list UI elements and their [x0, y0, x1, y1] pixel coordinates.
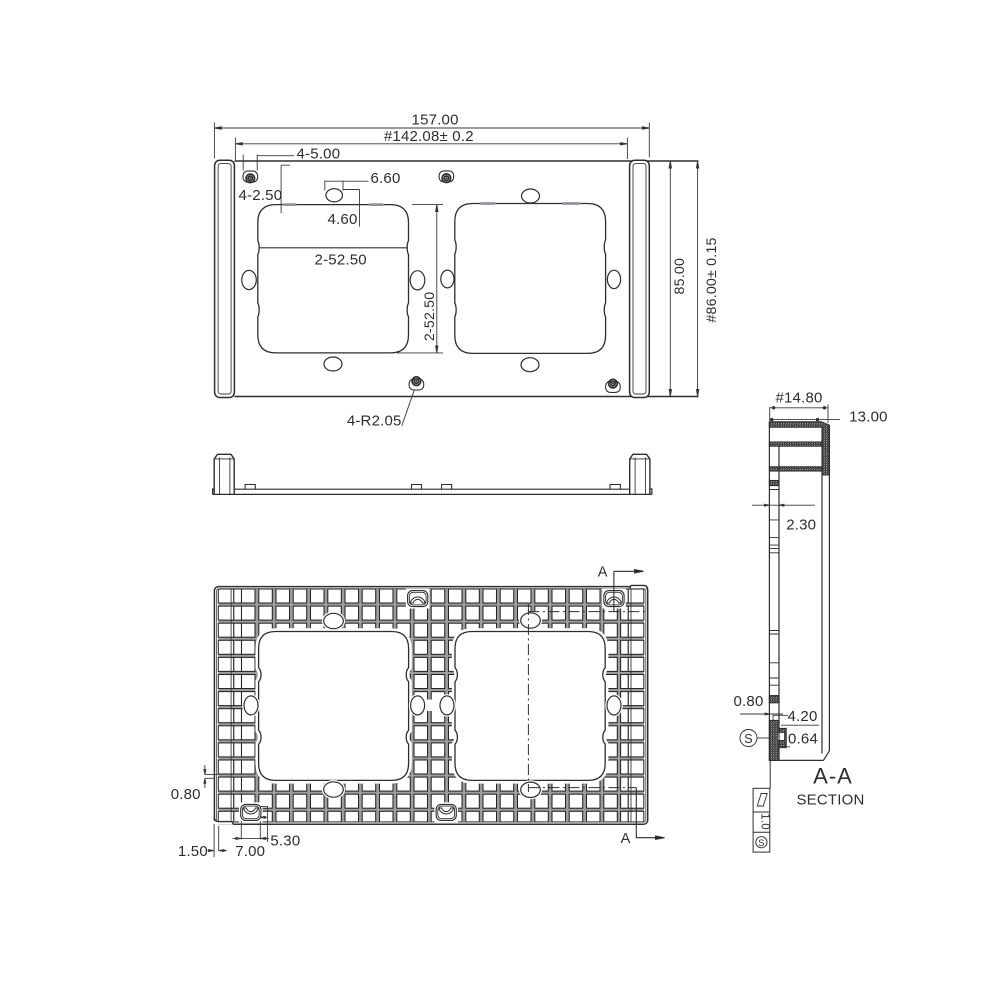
svg-text:#86.00± 0.15: #86.00± 0.15: [704, 237, 720, 322]
svg-text:0.80: 0.80: [171, 786, 201, 803]
svg-text:13.00: 13.00: [849, 409, 888, 426]
svg-text:SECTION: SECTION: [796, 792, 864, 809]
svg-text:S: S: [744, 732, 753, 746]
svg-text:1.50: 1.50: [178, 843, 208, 860]
svg-text:157.00: 157.00: [412, 112, 459, 129]
svg-text:4.60: 4.60: [328, 211, 358, 228]
svg-text:0.64: 0.64: [788, 731, 818, 748]
svg-text:2-52.50: 2-52.50: [422, 292, 438, 342]
svg-text:4-5.00: 4-5.00: [297, 145, 341, 162]
svg-text:A: A: [621, 831, 631, 847]
svg-text:4.20: 4.20: [788, 708, 818, 725]
svg-text:#142.08± 0.2: #142.08± 0.2: [384, 128, 474, 145]
svg-text:0.80: 0.80: [734, 693, 764, 710]
svg-text:85.00: 85.00: [672, 258, 688, 295]
svg-text:S: S: [758, 838, 765, 849]
svg-text:2.30: 2.30: [786, 517, 816, 534]
svg-text:1.0: 1.0: [759, 813, 771, 830]
svg-text:4-R2.05: 4-R2.05: [347, 413, 402, 430]
svg-text:A-A: A-A: [813, 764, 853, 789]
svg-text:7.00: 7.00: [235, 843, 265, 860]
svg-text:2-52.50: 2-52.50: [315, 251, 367, 268]
svg-text:5.30: 5.30: [270, 833, 300, 850]
svg-text:6.60: 6.60: [371, 170, 401, 187]
svg-text:#14.80: #14.80: [775, 390, 822, 407]
svg-text:A: A: [598, 565, 608, 581]
svg-text:4-2.50: 4-2.50: [239, 187, 283, 204]
